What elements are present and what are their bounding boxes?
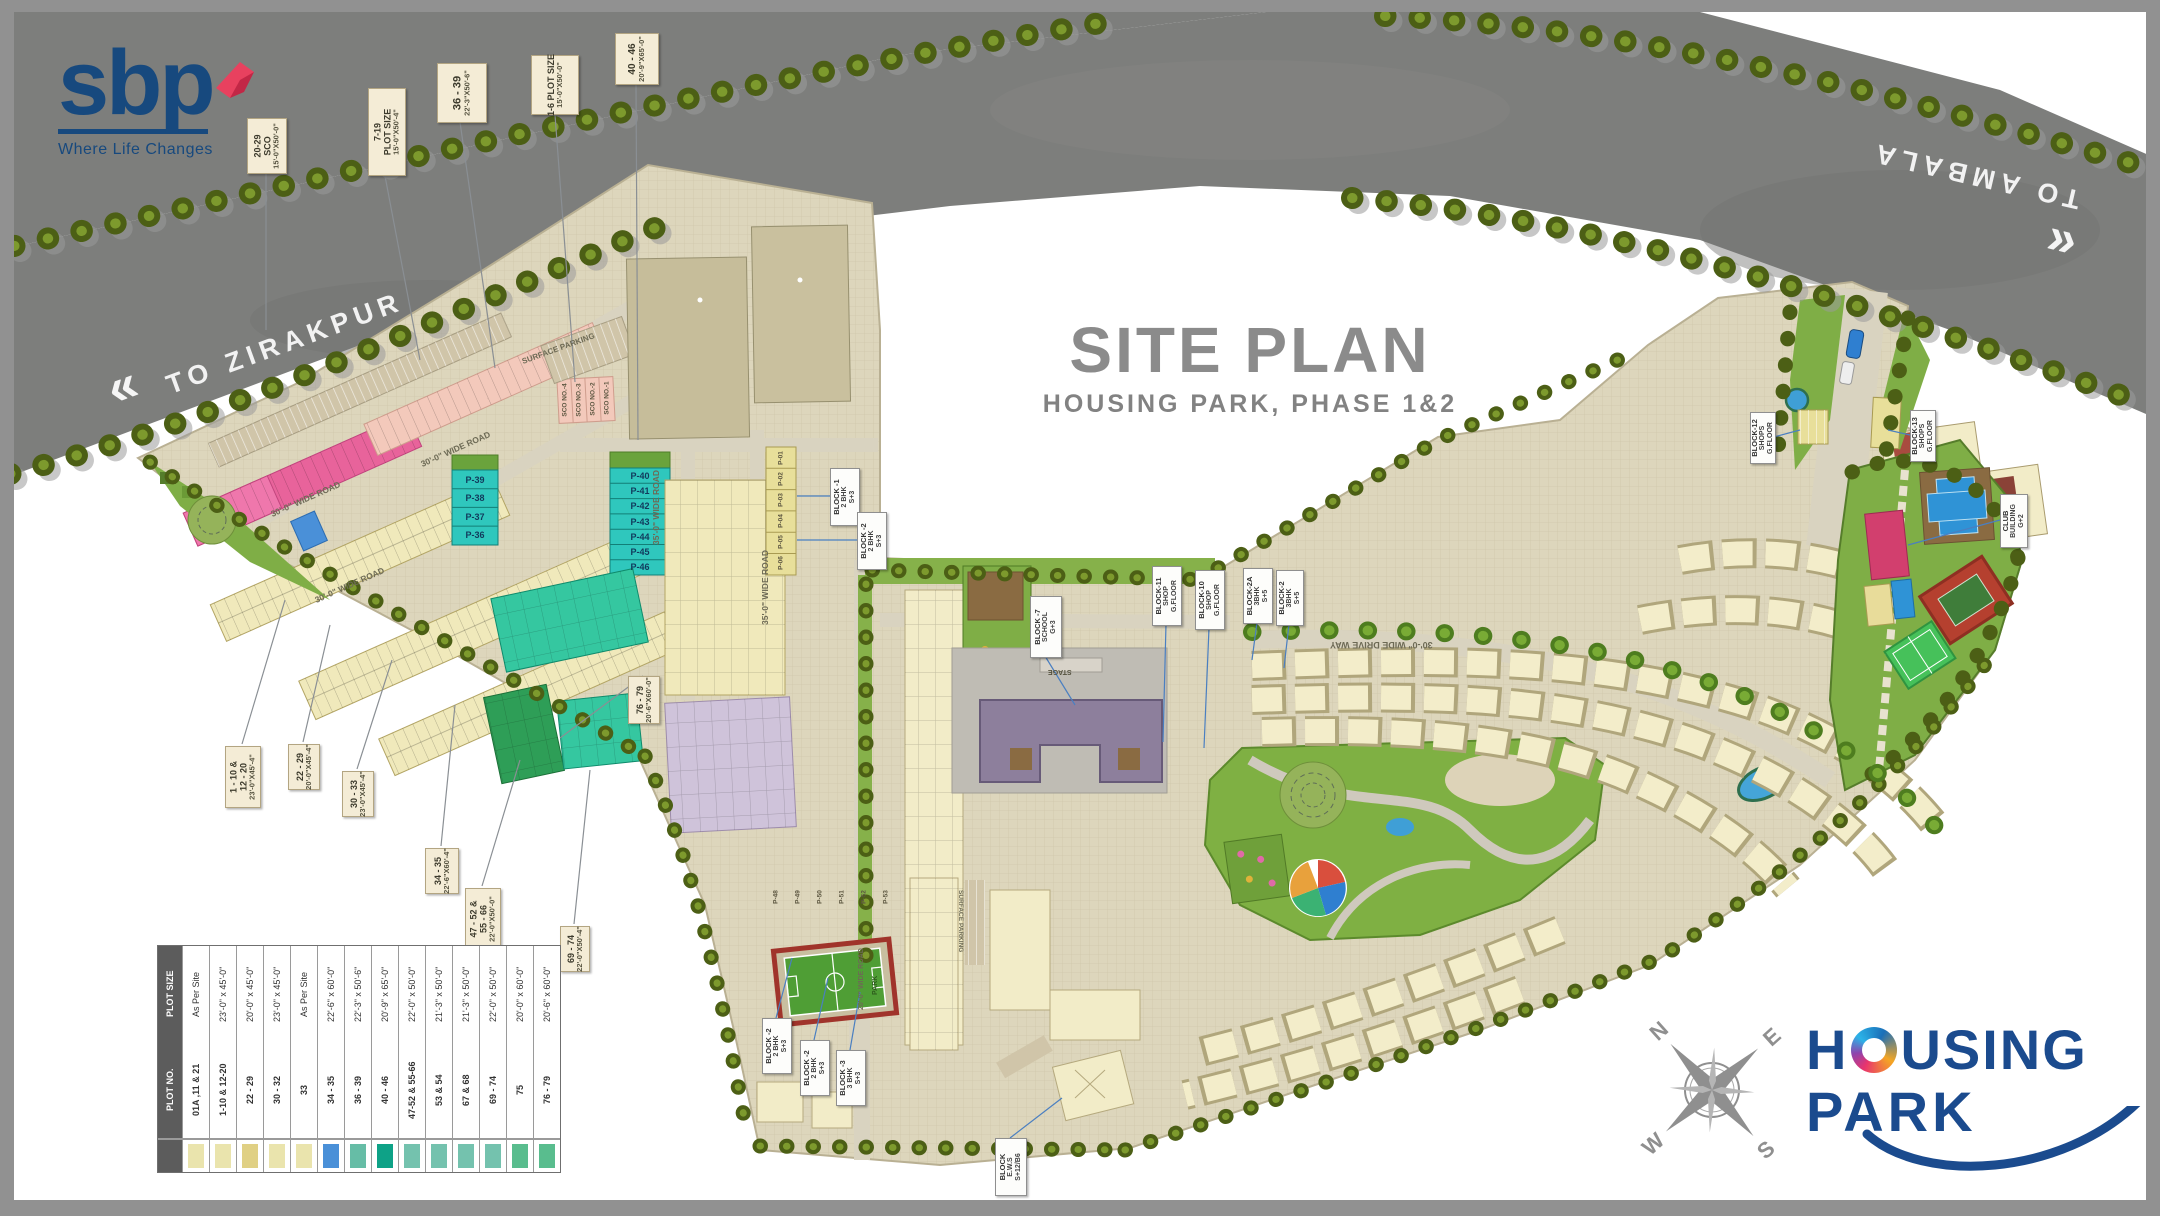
site-plan-sheet: N E S W SITE PLAN HOUSING PARK, PHASE 1&… xyxy=(0,0,2160,1216)
surface-parking-label-2: SURFACE PARKING xyxy=(957,890,964,952)
callout-block-10: BLOCK-10SHOPG.FLOOR xyxy=(1195,570,1225,630)
legend-swatch xyxy=(242,1144,258,1168)
legend-column: 22'-0" x 50'-0"69 - 74 xyxy=(479,946,506,1172)
pinwheel-canopy xyxy=(1289,859,1347,917)
legend-column: As Per Site33 xyxy=(290,946,317,1172)
plot-label: P-03 xyxy=(778,493,785,507)
legend-swatch xyxy=(296,1144,312,1168)
callout-block-2: BLOCK -22 BHKS+3 xyxy=(857,512,887,570)
legend-swatch xyxy=(215,1144,231,1168)
plot-label: P-48 xyxy=(773,890,780,904)
callout-1-6: 1-6 PLOT SIZE15'-0"X50'-0" xyxy=(531,55,579,115)
legend-column: 23'-0" x 45'-0"30 - 32 xyxy=(263,946,290,1172)
plot-label: P-53 xyxy=(883,890,890,904)
callout-block-2-bottom-2: BLOCK -22 BHKS+3 xyxy=(800,1040,830,1096)
sco-label: SCO NO.-3 xyxy=(576,383,583,416)
plot-label: P-46 xyxy=(630,562,649,572)
plot-label: P-49 xyxy=(795,890,802,904)
plot-label: P-39 xyxy=(465,475,484,485)
legend-column: 22'-0" x 50'-0"47-52 & 55-66 xyxy=(398,946,425,1172)
sbp-tagline: Where Life Changes xyxy=(58,141,258,159)
plot-label: P-42 xyxy=(630,501,649,511)
callout-block-3: BLOCK -33 BHKS+3 xyxy=(836,1050,866,1106)
legend-swatch xyxy=(485,1144,501,1168)
legend-column: 21'-3" x 50'-0"67 & 68 xyxy=(452,946,479,1172)
legend-swatch xyxy=(512,1144,528,1168)
legend-column: 21'-3" x 50'-0"53 & 54 xyxy=(425,946,452,1172)
callout-block-ews: BLOCKE.W.SS+12/B6 xyxy=(995,1138,1027,1196)
callout-1-10-12-20: 1 - 10 &12 - 2023'-0"X45'-4" xyxy=(225,746,261,808)
flower-garden xyxy=(1224,834,1290,903)
callout-30-33: 30 - 3323'-0"X45'-4" xyxy=(342,771,374,817)
amenity-building xyxy=(1864,584,1894,626)
compass-w: W xyxy=(1637,1128,1669,1161)
plot-label: P-40 xyxy=(630,471,649,481)
housing-park-logo: H USING PARK xyxy=(1806,1022,2116,1140)
plot-label: P-43 xyxy=(630,517,649,527)
legend-swatch xyxy=(431,1144,447,1168)
legend-swatch xyxy=(377,1144,393,1168)
legend-column: 23'-0" x 45'-0"1-10 & 12-20 xyxy=(209,946,236,1172)
legend-swatch xyxy=(269,1144,285,1168)
callout-block-2-bottom-1: BLOCK -22 BHKS+3 xyxy=(762,1018,792,1074)
plot-label: P-05 xyxy=(778,535,785,549)
hp-o-ring-icon xyxy=(1851,1027,1897,1073)
wide-road-label-5: 35'-0" WIDE ROAD xyxy=(760,550,770,625)
legend-swatch xyxy=(350,1144,366,1168)
plan-title-block: SITE PLAN HOUSING PARK, PHASE 1&2 xyxy=(1040,318,1460,419)
legend-column: 20'-9" x 65'-0"40 - 46 xyxy=(371,946,398,1172)
callout-block-11: BLOCK-11SHOPG.FLOOR xyxy=(1152,566,1182,626)
lavender-plot-grid xyxy=(665,697,797,833)
plot-label: P-02 xyxy=(778,472,785,486)
plot-label: P-37 xyxy=(465,512,484,522)
plot-label: P-50 xyxy=(817,890,824,904)
plot-legend-table: PLOT SIZE PLOT NO. As Per Site01A ,11 & … xyxy=(157,945,561,1173)
legend-swatch xyxy=(323,1144,339,1168)
legend-swatch xyxy=(539,1144,555,1168)
legend-swatch xyxy=(188,1144,204,1168)
legend-column: 20'-0" x 60'-0"75 xyxy=(506,946,533,1172)
callout-club-building: CLUBBUILDINGG+2 xyxy=(2000,494,2028,548)
callout-22-29: 22 - 2920'-0"X45'-4" xyxy=(288,744,320,790)
legend-column: 22'-3" x 50'-6"36 - 39 xyxy=(344,946,371,1172)
sbp-logo-accent-icon xyxy=(214,58,258,102)
callout-36-39: 36 - 3922'-3"X50'-6" xyxy=(437,63,487,123)
plot-label: P-36 xyxy=(465,530,484,540)
plot-label: P-44 xyxy=(630,532,649,542)
callout-block-2-3bhk: BLOCK-23BHKS+5 xyxy=(1276,570,1304,626)
callout-34-35: 34 - 3522'-6"X60'-4" xyxy=(425,848,459,894)
sco-label: SCO NO.-2 xyxy=(590,382,597,415)
plot-label: P-52 xyxy=(861,890,868,904)
mini-court xyxy=(1891,579,1915,619)
page-subtitle: HOUSING PARK, PHASE 1&2 xyxy=(1040,390,1460,419)
wide-road-label-6: 20'-0" WIDE ROAD xyxy=(858,948,865,1010)
legend-swatch xyxy=(404,1144,420,1168)
legend-swatch xyxy=(458,1144,474,1168)
plot-label: P-51 xyxy=(839,890,846,904)
park-label: PARK xyxy=(872,976,879,995)
compass-rose: N E S W xyxy=(1583,963,1839,1200)
callout-47-52-55-66: 47 - 52 &55 - 6622'-0"X50'-0" xyxy=(465,888,501,950)
compass-e: E xyxy=(1758,1023,1786,1051)
compass-n: N xyxy=(1645,1016,1674,1045)
callout-block-12: BLOCK-12SHOPSG.FLOOR xyxy=(1750,412,1776,464)
plot-label: P-45 xyxy=(630,547,649,557)
plot-label: P-06 xyxy=(778,556,785,570)
plot-label: P-01 xyxy=(778,451,785,465)
compass-s: S xyxy=(1752,1136,1780,1164)
plan-page: N E S W SITE PLAN HOUSING PARK, PHASE 1&… xyxy=(14,12,2146,1200)
callout-block-2a: BLOCK-2A3BHKS+5 xyxy=(1243,568,1273,624)
legend-header-column: PLOT SIZE PLOT NO. xyxy=(158,946,182,1172)
stage-label: STAGE xyxy=(1048,668,1072,675)
legend-column: 20'-0" x 45'-0"22 - 29 xyxy=(236,946,263,1172)
legend-column: As Per Site01A ,11 & 21 xyxy=(182,946,209,1172)
callout-69-74: 69 - 7422'-0"X50'-4" xyxy=(560,926,590,972)
sco-label: SCO NO.-1 xyxy=(604,381,611,414)
amenity-zone xyxy=(1830,440,2022,790)
plot-label: P-41 xyxy=(630,486,649,496)
hp-letter-h: H xyxy=(1806,1022,1848,1078)
legend-header-plot-size: PLOT SIZE xyxy=(158,946,182,1042)
sco-label: SCO NO.-4 xyxy=(562,383,569,416)
callout-40-46: 40 - 4620'-9"X65'-0" xyxy=(615,33,659,85)
callout-block-13: BLOCK-13SHOPSG.FLOOR xyxy=(1910,410,1936,462)
plot-label: P-04 xyxy=(778,514,785,528)
callout-7-19: 7-19PLOT SIZE15'-0"X50'-4" xyxy=(368,88,406,176)
callout-76-79: 76 - 7920'-6"X60'-0" xyxy=(628,676,660,724)
legend-header-plot-no: PLOT NO. xyxy=(158,1042,182,1139)
sbp-logo: sbp Where Life Changes xyxy=(58,40,258,159)
callout-block-1: BLOCK -12 BHKS+3 xyxy=(830,468,860,526)
callout-block-7-school: BLOCK -7SCHOOLG+3 xyxy=(1030,596,1062,658)
drive-way-label: 30'-0" WIDE DRIVE WAY xyxy=(1330,640,1433,650)
plot-label: P-38 xyxy=(465,493,484,503)
housing-word-rest: USING xyxy=(1900,1022,2087,1078)
legend-column: 22'-6" x 60'-0"34 - 35 xyxy=(317,946,344,1172)
hp-swoosh-icon xyxy=(1862,1106,2146,1196)
wide-road-label-4: 35'-0" WIDE ROAD xyxy=(651,470,661,545)
club-building xyxy=(1865,510,1910,580)
page-title: SITE PLAN xyxy=(1040,318,1460,382)
legend-column: 20'-6" x 60'-0"76 - 79 xyxy=(533,946,560,1172)
